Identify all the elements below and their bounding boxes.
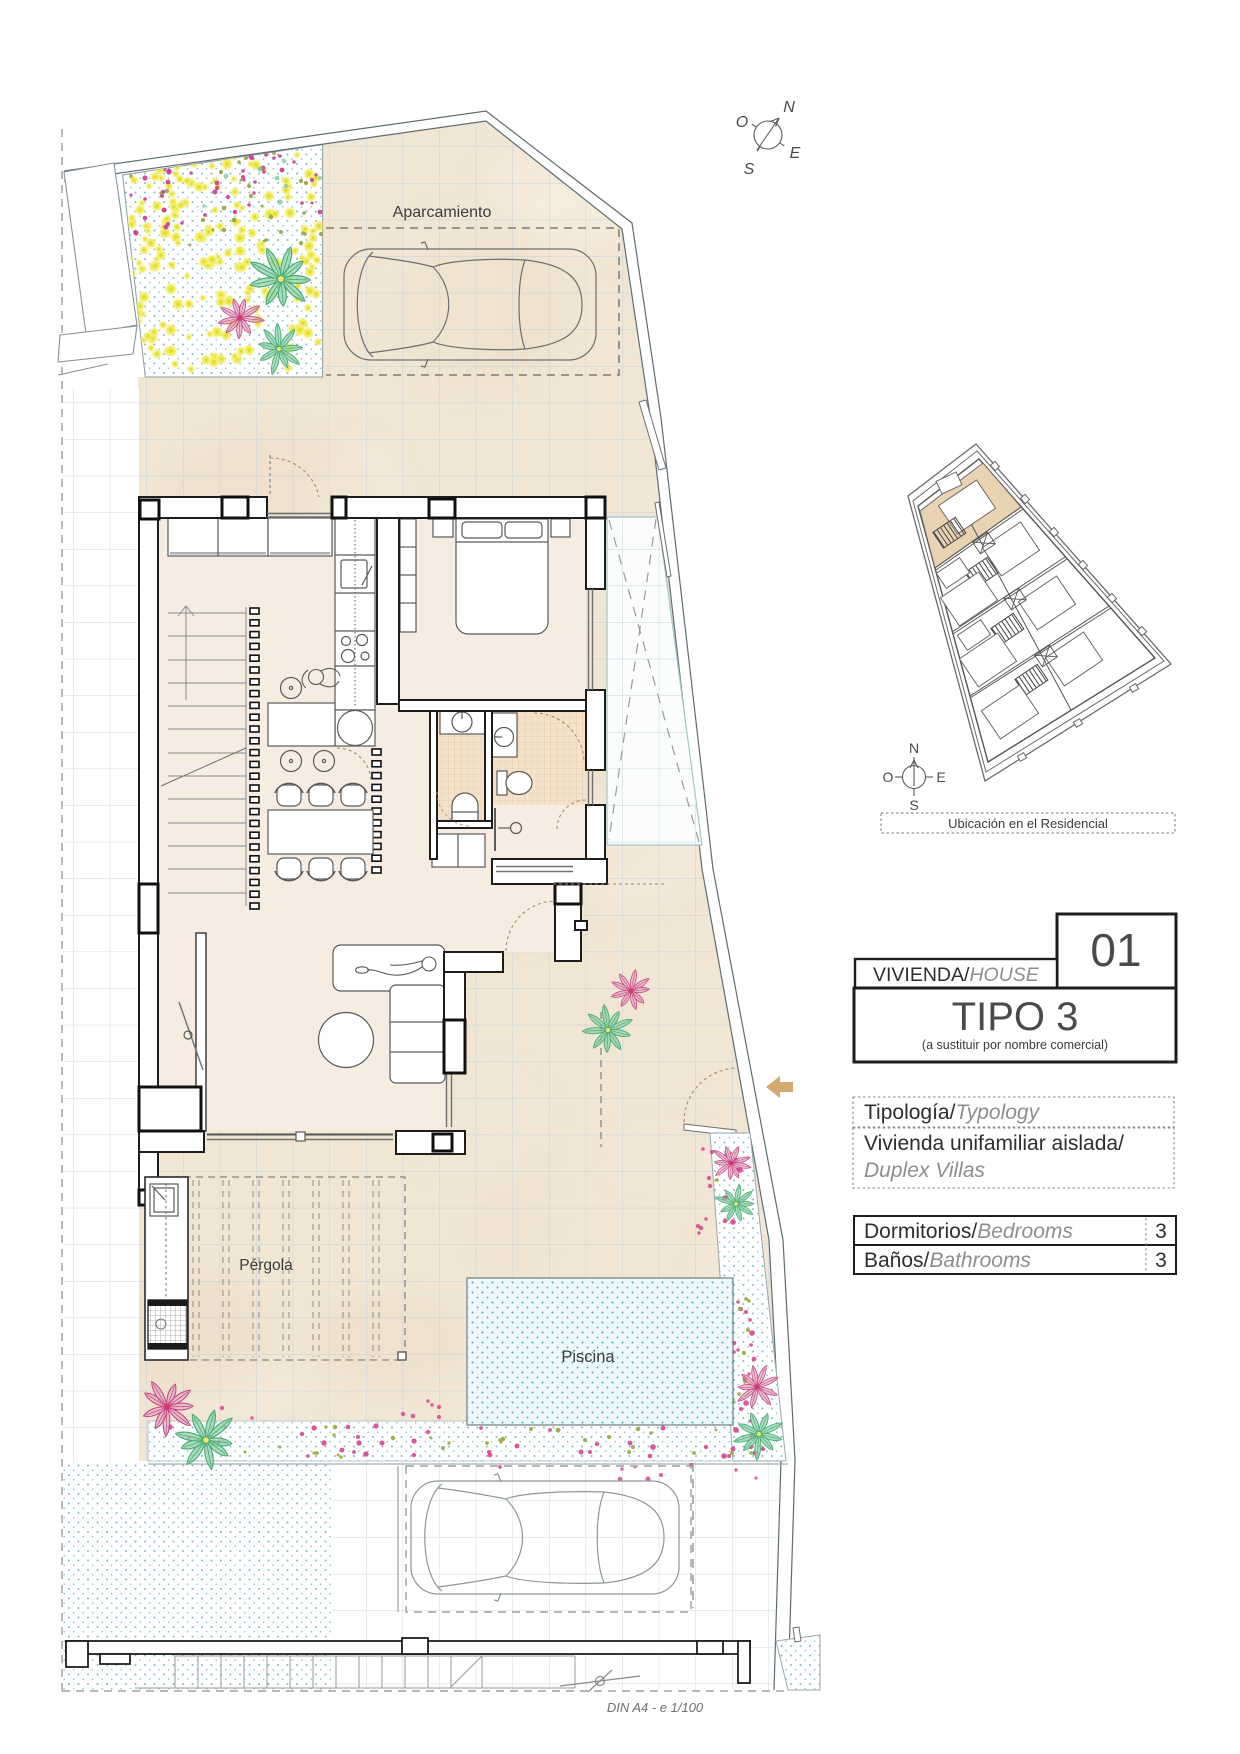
svg-text:O: O: [736, 114, 748, 131]
svg-text:01: 01: [1090, 924, 1141, 976]
svg-text:N: N: [783, 99, 795, 116]
svg-text:Tipología/Typology: Tipología/Typology: [864, 1101, 1041, 1124]
svg-text:DIN A4 - e 1/100: DIN A4 - e 1/100: [607, 1700, 704, 1715]
svg-text:Baños/Bathrooms: Baños/Bathrooms: [864, 1249, 1031, 1272]
svg-text:VIVIENDA/HOUSE: VIVIENDA/HOUSE: [873, 964, 1040, 986]
svg-text:(a sustituir por nombre comerc: (a sustituir por nombre comercial): [922, 1038, 1108, 1052]
svg-text:Vivienda unifamiliar aislada/: Vivienda unifamiliar aislada/: [864, 1132, 1124, 1155]
svg-text:3: 3: [1155, 1220, 1167, 1243]
svg-text:Aparcamiento: Aparcamiento: [393, 204, 492, 221]
svg-text:3: 3: [1155, 1249, 1167, 1272]
svg-text:TIPO 3: TIPO 3: [952, 995, 1079, 1039]
svg-text:S: S: [909, 797, 918, 813]
svg-text:Dormitorios/Bedrooms: Dormitorios/Bedrooms: [864, 1220, 1073, 1243]
svg-text:Pérgola: Pérgola: [239, 1257, 293, 1274]
svg-text:O: O: [883, 769, 894, 785]
svg-text:E: E: [790, 145, 801, 162]
svg-text:N: N: [909, 740, 919, 756]
svg-text:Piscina: Piscina: [561, 1348, 615, 1366]
svg-text:Duplex Villas: Duplex Villas: [864, 1159, 986, 1182]
svg-text:S: S: [744, 161, 755, 178]
svg-text:Ubicación en el Residencial: Ubicación en el Residencial: [948, 816, 1108, 831]
svg-text:E: E: [936, 769, 945, 785]
